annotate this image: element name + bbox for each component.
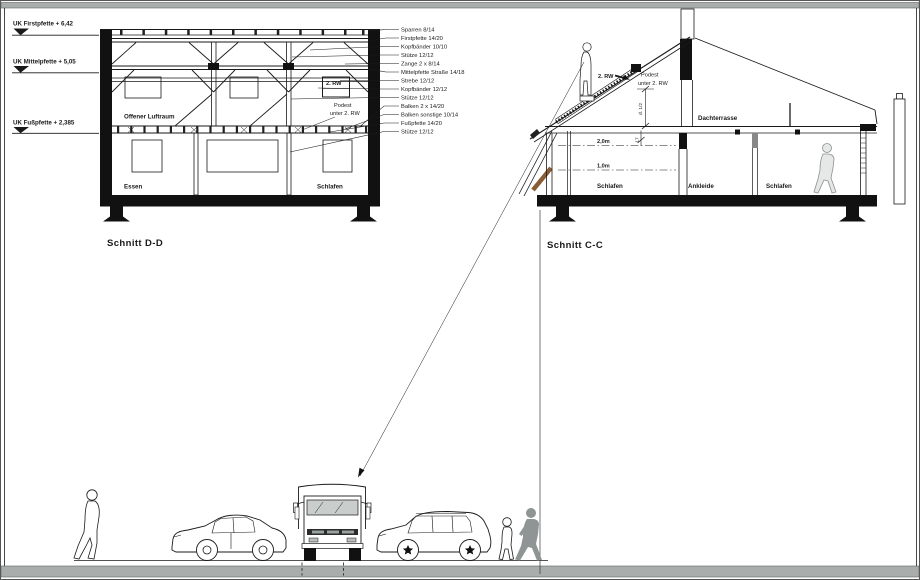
- title-schnitt-dd: Schnitt D-D: [107, 238, 163, 249]
- floor-mark: [735, 130, 740, 135]
- dim-floor-text: 17: [635, 137, 641, 143]
- sheet-frame: [1, 1, 920, 580]
- material-item: Zange 2 x 8/14: [401, 62, 440, 68]
- material-item: Strebe 12/12: [401, 79, 434, 85]
- room-ankleide: Ankleide: [688, 183, 714, 190]
- signal-light: [347, 538, 356, 542]
- datum-mittelpfette: UK Mittelpfette + 5,05: [13, 59, 76, 66]
- material-item: Stütze 12/12: [401, 96, 434, 102]
- room-schlafen-dd: Schlafen: [317, 184, 343, 191]
- podest-label-1: Podest: [334, 103, 352, 109]
- material-item: Mittelpfette Straße 14/18: [401, 70, 464, 76]
- height-2m: 2,0m: [597, 139, 610, 145]
- bottom-gray-bar: [1, 566, 919, 577]
- material-item: Fußpfette 14/20: [401, 121, 442, 127]
- wheel: [349, 548, 361, 561]
- cc-podest-label-2: unter 2. RW: [638, 81, 668, 87]
- bumper: [302, 544, 363, 549]
- cc-rw-label: 2. RW: [598, 74, 614, 80]
- material-item: Kopfbänder 12/12: [401, 87, 447, 93]
- eave-block-right: [860, 124, 876, 131]
- floor-slab: [537, 195, 877, 207]
- room-essen: Essen: [124, 184, 142, 191]
- material-item: Stütze 12/12: [401, 130, 434, 136]
- top-gray-bar: [1, 3, 919, 9]
- material-item: Balken 2 x 14/20: [401, 104, 444, 110]
- material-item: Firstpfette 14/20: [401, 36, 443, 42]
- windshield: [307, 500, 358, 515]
- label-dachterrasse: Dachterrasse: [698, 115, 738, 122]
- podest-block: [631, 64, 641, 72]
- partition-black: [679, 133, 687, 149]
- chimney-black: [680, 39, 692, 80]
- room-schlafen-left: Schlafen: [597, 183, 623, 190]
- material-item: Kopfbänder 10/10: [401, 45, 447, 51]
- rw-box-label: 2. RW: [326, 81, 342, 87]
- material-item: Balken sonstige 10/14: [401, 113, 459, 119]
- material-item: Sparren 8/14: [401, 28, 435, 34]
- room-schlafen-right: Schlafen: [766, 183, 792, 190]
- height-1m: 1,0m: [597, 164, 610, 170]
- floor-mark: [795, 130, 800, 135]
- wheel: [304, 548, 316, 561]
- floor-slab: [100, 195, 380, 207]
- signal-light: [309, 538, 318, 542]
- room-offener-luftraum: Offener Luftraum: [124, 114, 175, 121]
- datum-fusspfette: UK Fußpfette + 2,385: [13, 120, 75, 127]
- datum-firstpfette: UK Firstpfette + 6,42: [13, 21, 74, 28]
- partition-shaft: [752, 133, 758, 148]
- drawing-sheet: UK Firstpfette + 6,42 UK Mittelpfette + …: [0, 0, 920, 580]
- architectural-section-drawing: UK Firstpfette + 6,42 UK Mittelpfette + …: [0, 0, 920, 580]
- downpipe: [894, 94, 905, 205]
- post-connector: [208, 63, 219, 70]
- post-connector: [283, 63, 294, 70]
- cc-podest-label-1: Podest: [641, 73, 659, 79]
- material-item: Stütze 12/12: [401, 53, 434, 59]
- wall-left: [100, 30, 112, 206]
- dim-roof-text: d. 1/2: [638, 103, 644, 115]
- title-schnitt-cc: Schnitt C-C: [547, 240, 603, 251]
- podest-label-2: unter 2. RW: [330, 111, 360, 117]
